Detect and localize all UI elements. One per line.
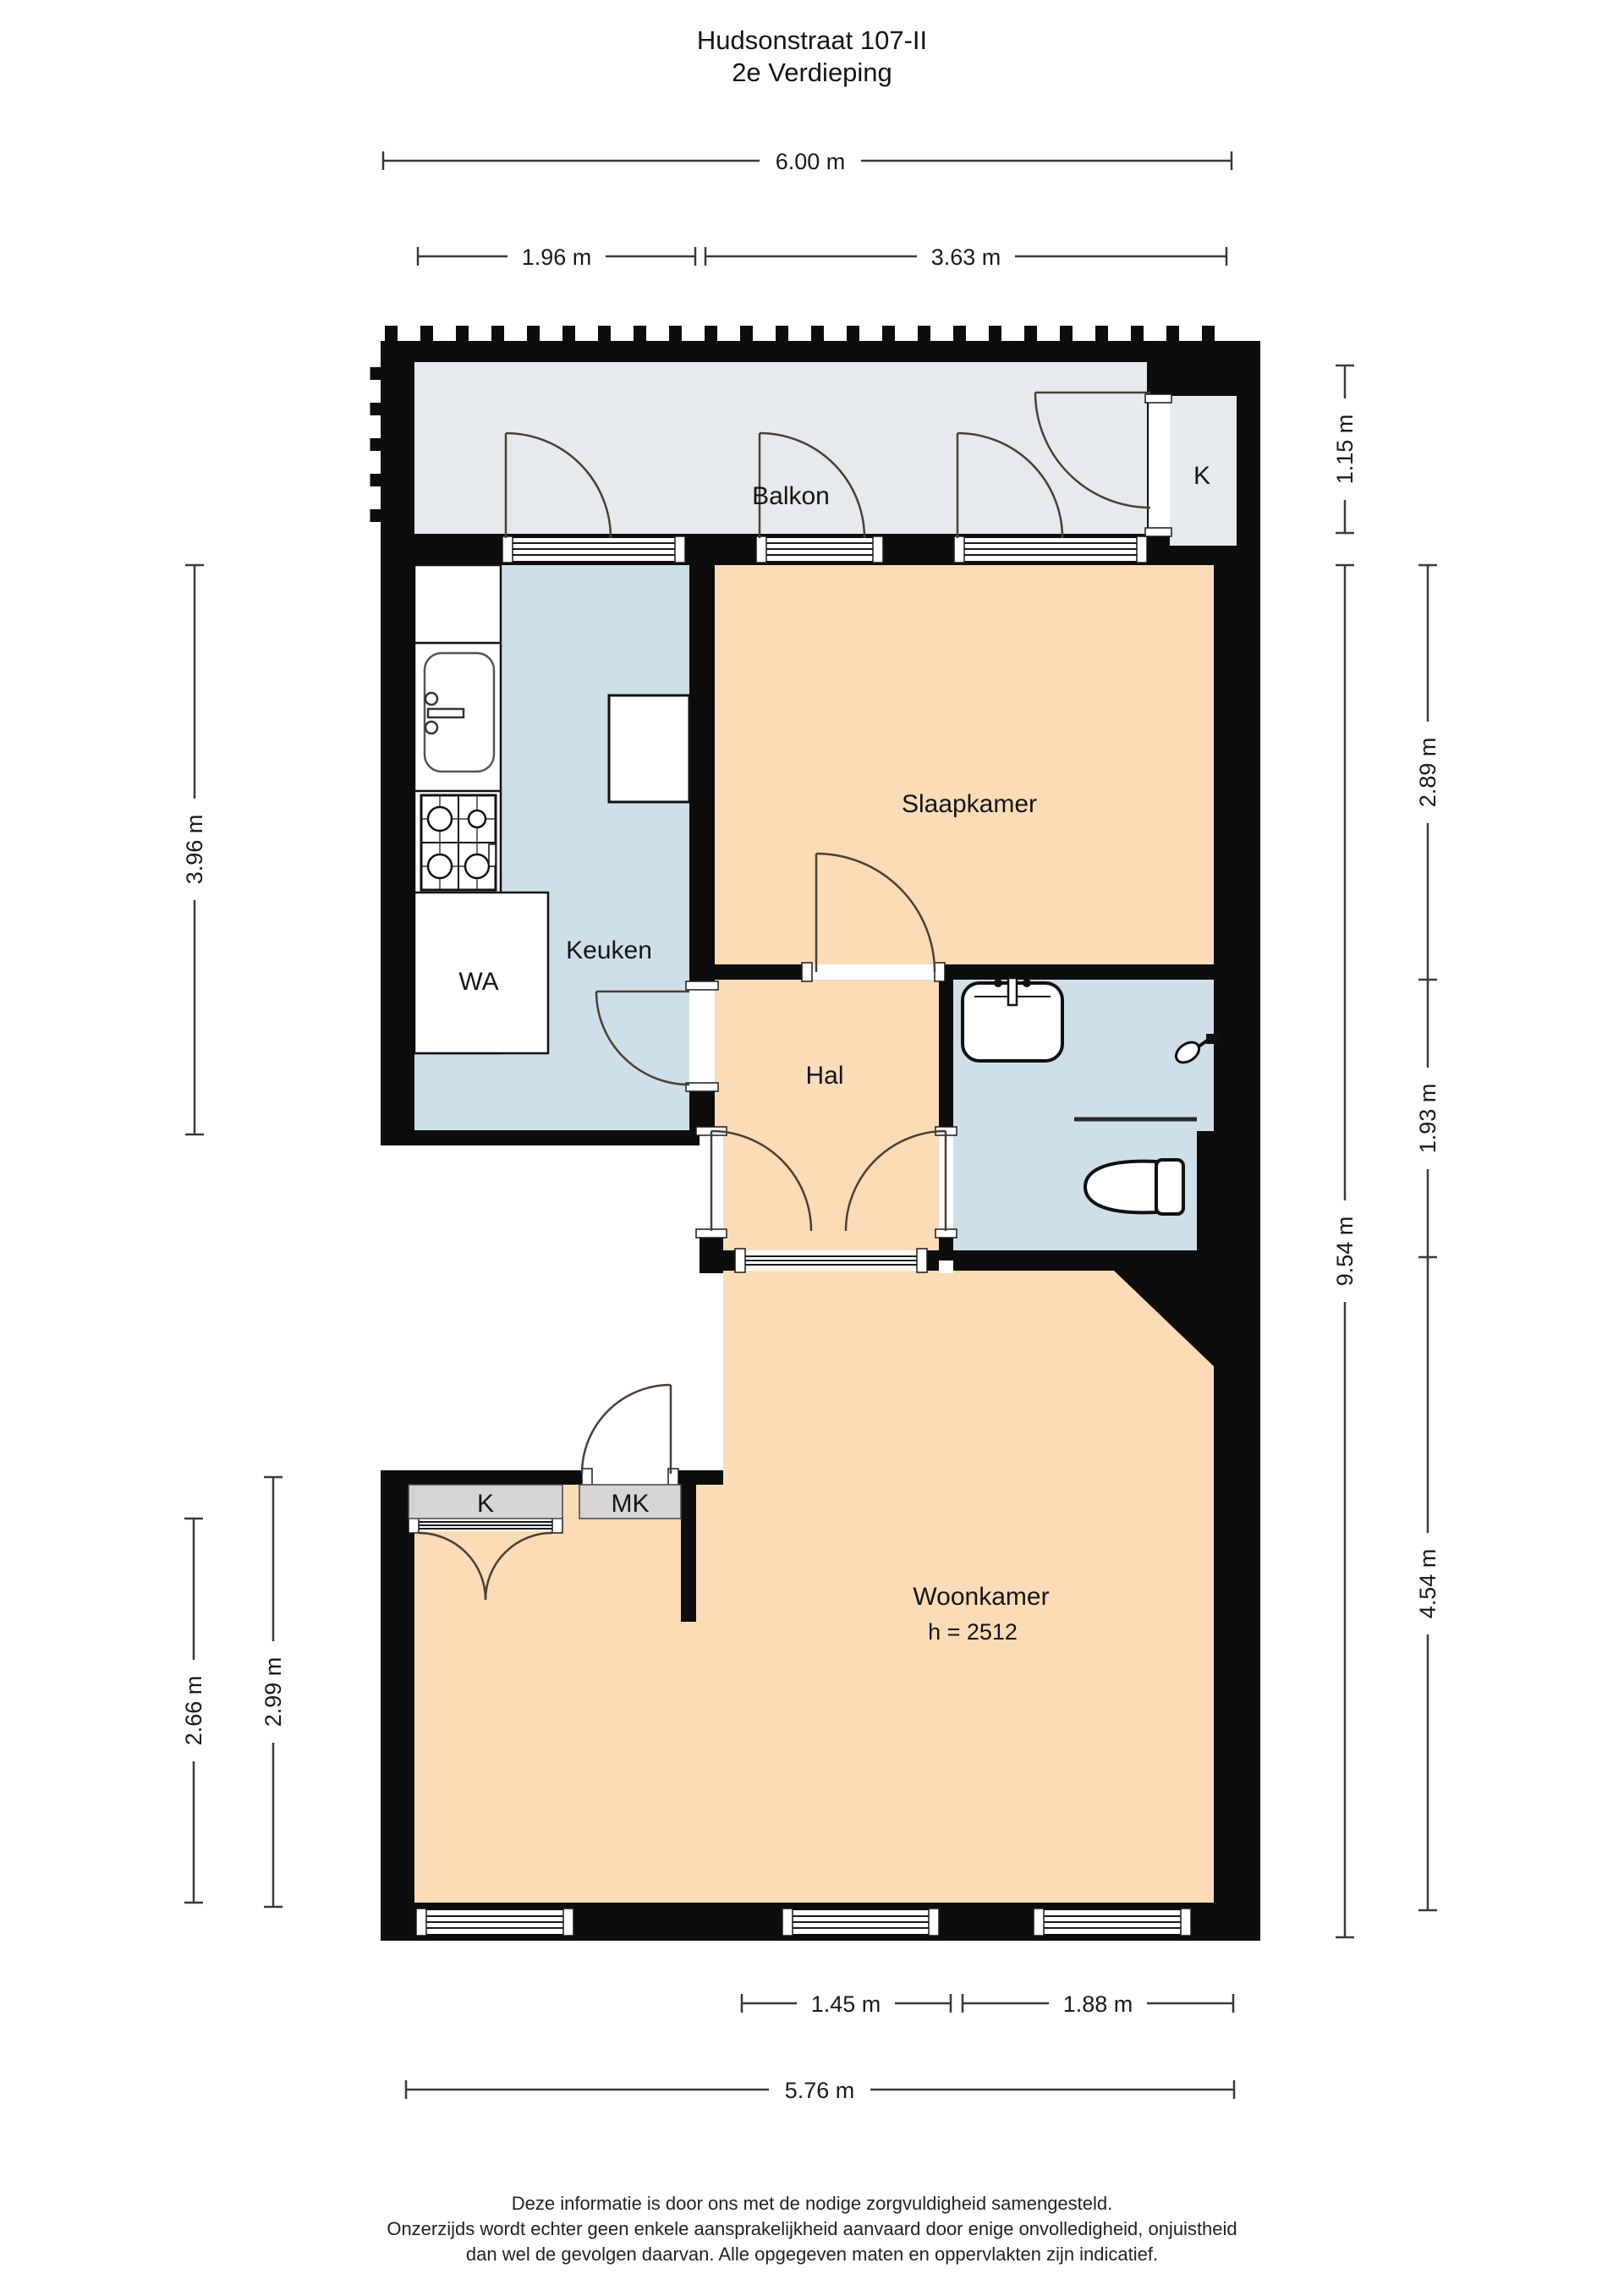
meter-closet-door — [582, 1385, 671, 1474]
svg-text:2.66 m: 2.66 m — [181, 1676, 206, 1746]
hall-floor — [715, 980, 939, 1273]
footer-line-3: dan wel de gevolgen daarvan. Alle opgege… — [466, 2244, 1158, 2265]
svg-text:5.76 m: 5.76 m — [785, 2078, 855, 2103]
svg-text:4.54 m: 4.54 m — [1415, 1549, 1440, 1619]
dim-bottom-left: 1.45 m — [742, 1989, 951, 2018]
dim-left-outer: 2.66 m — [179, 1519, 208, 1903]
kitchen-label: Keuken — [566, 937, 652, 964]
bedroom-south-wall — [715, 964, 1214, 980]
bedroom-floor — [715, 565, 1214, 964]
footer-line-2: Onzerzijds wordt echter geen enkele aans… — [387, 2218, 1237, 2239]
dim-left-kitchen: 3.96 m — [180, 565, 209, 1134]
svg-text:3.96 m: 3.96 m — [182, 815, 207, 885]
washer-label: WA — [458, 968, 498, 996]
balcony-label: Balkon — [752, 482, 830, 510]
bathroom-sink-icon — [963, 978, 1062, 1061]
right-outer-wall — [1214, 534, 1260, 1941]
living-wall-stub — [681, 1470, 696, 1622]
kitchen-south-wall — [381, 1130, 717, 1145]
page-subtitle: 2e Verdieping — [732, 58, 892, 87]
toilet-icon — [1085, 1160, 1183, 1214]
dim-top-total: 6.00 m — [383, 146, 1232, 176]
balcony-outer-wall — [381, 341, 1237, 362]
dim-right-living: 4.54 m — [1413, 1257, 1442, 1910]
bathroom-south-wall — [953, 1250, 1114, 1271]
dim-bottom-right: 1.88 m — [963, 1989, 1233, 2018]
page-title: Hudsonstraat 107-II — [697, 25, 927, 55]
dim-bottom-total: 5.76 m — [406, 2075, 1234, 2104]
footer-disclaimer: Deze informatie is door ons met de nodig… — [387, 2193, 1237, 2265]
toilet-nook-wall — [1197, 1131, 1214, 1250]
living-corridor-floor — [723, 1273, 953, 1485]
closet-boxes: K MK — [409, 1485, 681, 1519]
kitchen-sink-icon — [425, 653, 494, 772]
floorplan-drawing: Hudsonstraat 107-II 2e Verdieping — [0, 0, 1624, 2296]
dim-right-bedroom: 2.89 m — [1413, 565, 1442, 980]
svg-text:1.96 m: 1.96 m — [522, 244, 592, 270]
dim-right-bathroom: 1.93 m — [1413, 980, 1442, 1257]
svg-text:1.88 m: 1.88 m — [1063, 1991, 1133, 2017]
svg-text:1.15 m: 1.15 m — [1332, 415, 1358, 485]
svg-text:2.99 m: 2.99 m — [261, 1657, 286, 1727]
svg-text:1.45 m: 1.45 m — [811, 1991, 881, 2017]
svg-text:9.54 m: 9.54 m — [1332, 1217, 1358, 1287]
svg-text:6.00 m: 6.00 m — [776, 149, 846, 174]
dim-top-right: 3.63 m — [705, 242, 1226, 271]
living-ceiling-label: h = 2512 — [928, 1619, 1018, 1645]
dim-right-total: 9.54 m — [1330, 565, 1359, 1937]
footer-line-1: Deze informatie is door ons met de nodig… — [512, 2193, 1113, 2214]
living-label: Woonkamer — [913, 1583, 1049, 1611]
floorplan-page: Hudsonstraat 107-II 2e Verdieping — [0, 0, 1624, 2296]
bedroom-label: Slaapkamer — [902, 790, 1037, 818]
living-main-floor — [414, 1485, 1214, 1903]
dim-left-inner: 2.99 m — [259, 1477, 288, 1907]
dim-top-left: 1.96 m — [418, 242, 695, 271]
closet-left-label: K — [477, 1490, 494, 1518]
closet-top-label: K — [1193, 462, 1210, 490]
svg-text:2.89 m: 2.89 m — [1415, 738, 1440, 808]
meter-closet-label: MK — [612, 1490, 650, 1518]
left-wall-upper — [381, 341, 414, 1130]
left-wall-lower — [381, 1470, 414, 1941]
kitchen-island — [609, 695, 689, 802]
svg-text:1.93 m: 1.93 m — [1415, 1084, 1440, 1154]
svg-text:3.63 m: 3.63 m — [931, 244, 1001, 270]
dim-right-balcony: 1.15 m — [1330, 365, 1359, 533]
hall-label: Hal — [805, 1062, 843, 1090]
stove-icon — [421, 795, 496, 890]
